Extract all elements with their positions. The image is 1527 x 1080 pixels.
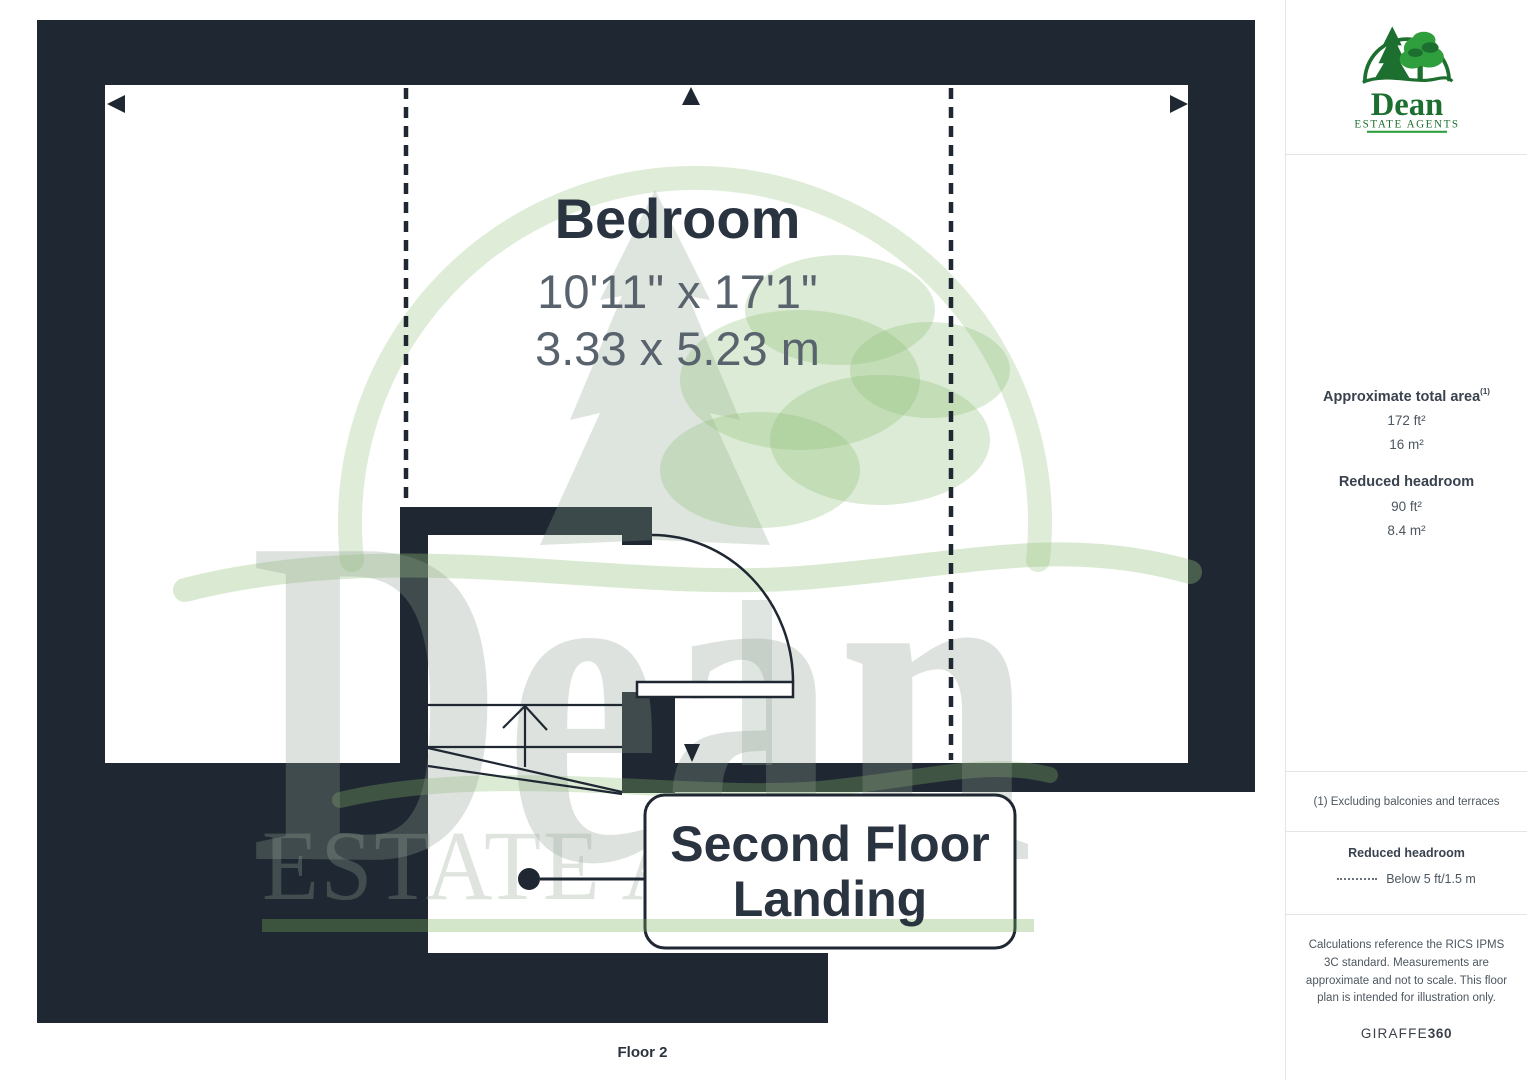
staircase — [428, 705, 622, 794]
floorplan-canvas: Dean ESTATE AGENTS — [0, 0, 1285, 1080]
area-summary-section: Approximate total area(1) 172 ft² 16 m² … — [1286, 155, 1527, 772]
legend-title: Reduced headroom — [1348, 846, 1465, 860]
total-area-metric: 16 m² — [1389, 437, 1424, 452]
legend-row: Below 5 ft/1.5 m — [1337, 872, 1476, 886]
reduced-headroom-metric: 8.4 m² — [1387, 523, 1425, 538]
floorplan-page: Dean ESTATE AGENTS — [0, 0, 1527, 1080]
total-area-imperial: 172 ft² — [1387, 413, 1425, 428]
legend-dash-line-icon — [1337, 878, 1377, 880]
reduced-headroom-title: Reduced headroom — [1339, 474, 1474, 490]
footnote-text: (1) Excluding balconies and terraces — [1313, 796, 1499, 808]
brand-logo-section: Dean ESTATE AGENTS — [1286, 0, 1527, 155]
disclaimer-section: Calculations reference the RICS IPMS 3C … — [1286, 915, 1527, 1079]
info-sidebar: Dean ESTATE AGENTS Approximate total are… — [1285, 0, 1527, 1080]
brand-logo: Dean ESTATE AGENTS — [1352, 18, 1462, 136]
logo-tagline-text: ESTATE AGENTS — [1354, 119, 1459, 131]
legend-item-label: Below 5 ft/1.5 m — [1386, 872, 1476, 886]
landing-callout-dot — [518, 868, 540, 890]
landing-label-box — [645, 795, 1015, 948]
door-swing-arc — [652, 535, 793, 682]
approximate-area-title: Approximate total area(1) — [1323, 388, 1490, 405]
logo-brand-text: Dean — [1370, 87, 1443, 123]
approximate-area-title-text: Approximate total area — [1323, 388, 1480, 404]
door — [637, 535, 793, 697]
approximate-area-footnote-marker: (1) — [1480, 387, 1490, 396]
giraffe360-brand-regular: GIRAFFE — [1361, 1026, 1428, 1041]
direction-marker-right-icon — [1170, 95, 1188, 113]
landing-callout — [518, 795, 1015, 948]
logo-underline — [1366, 131, 1446, 133]
legend-section: Reduced headroom Below 5 ft/1.5 m — [1286, 832, 1527, 915]
reduced-headroom-imperial: 90 ft² — [1391, 499, 1422, 514]
giraffe360-brand: GIRAFFE360 — [1361, 1026, 1452, 1041]
floorplan-symbols — [0, 0, 1285, 1080]
direction-marker-up-icon — [682, 87, 700, 105]
stairs-down-marker-icon — [684, 744, 700, 762]
giraffe360-brand-bold: 360 — [1428, 1026, 1452, 1041]
disclaimer-text: Calculations reference the RICS IPMS 3C … — [1303, 937, 1511, 1008]
direction-marker-left-icon — [107, 95, 125, 113]
footnote-section: (1) Excluding balconies and terraces — [1286, 772, 1527, 832]
door-leaf — [637, 682, 793, 697]
